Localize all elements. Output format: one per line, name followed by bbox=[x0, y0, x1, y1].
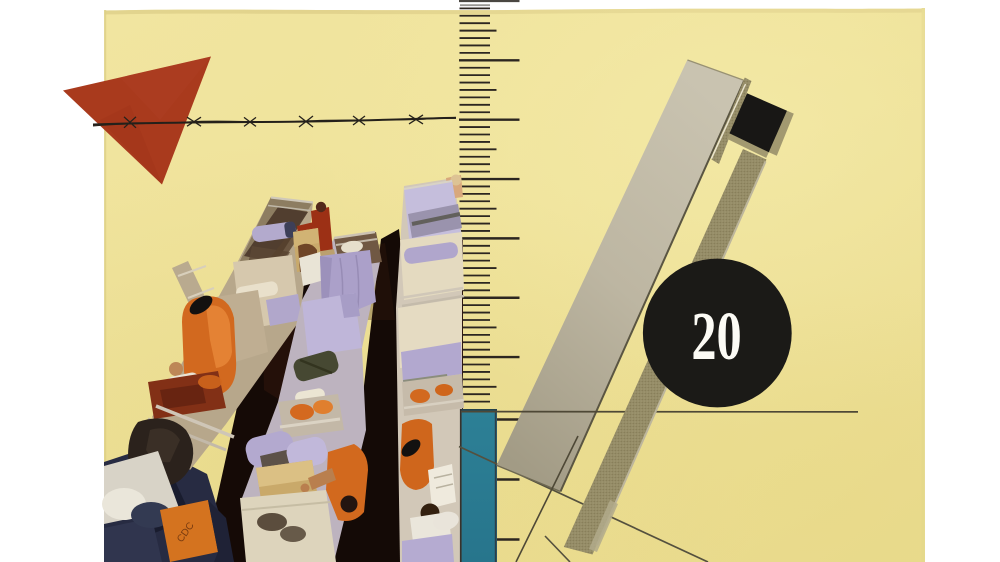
svg-text:20: 20 bbox=[691, 298, 741, 375]
